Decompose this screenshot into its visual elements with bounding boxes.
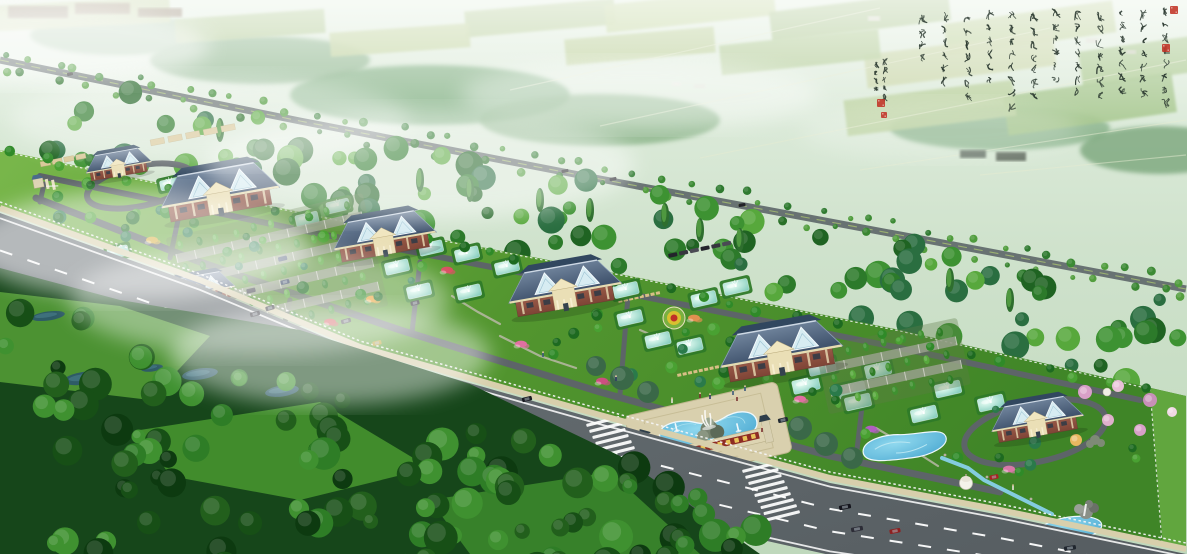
- tree-highlight: [602, 522, 621, 541]
- person: [671, 399, 673, 403]
- tree-highlight: [365, 515, 373, 523]
- tree-highlight: [132, 348, 145, 361]
- tree-highlight: [702, 521, 720, 539]
- tree-highlight: [572, 227, 584, 239]
- tree-highlight: [9, 301, 25, 317]
- tree-highlight: [667, 362, 674, 369]
- tree-highlight: [657, 493, 669, 505]
- tree-highlight: [46, 373, 60, 387]
- tree-highlight: [666, 240, 678, 252]
- person: [699, 394, 701, 398]
- tree-highlight: [133, 431, 141, 439]
- tree-highlight: [809, 388, 814, 393]
- flower-bed: [695, 318, 703, 323]
- tree-highlight: [1129, 445, 1134, 450]
- tree-highlight: [213, 406, 225, 418]
- parterre-center: [671, 315, 678, 322]
- tree-highlight: [419, 461, 433, 475]
- person: [615, 377, 617, 381]
- gate-booth: [33, 178, 45, 189]
- tree-highlight: [185, 437, 200, 452]
- flower-bed: [522, 344, 530, 349]
- tree-highlight: [350, 494, 366, 510]
- tree-highlight: [203, 498, 219, 514]
- tree-highlight: [895, 241, 905, 251]
- tree-highlight: [510, 255, 516, 261]
- tree-highlight: [595, 324, 600, 329]
- poplar-highlight: [662, 204, 667, 222]
- tree-highlight: [814, 230, 823, 239]
- tree-highlight: [893, 236, 897, 240]
- tree-highlight: [319, 231, 326, 238]
- tree-highlight: [833, 224, 836, 227]
- tree-highlight: [1155, 295, 1162, 302]
- tree-highlight: [849, 216, 852, 219]
- tree-highlight: [743, 517, 760, 534]
- tree-highlight: [1122, 264, 1126, 268]
- tree-highlight: [643, 187, 646, 190]
- tree-highlight: [968, 272, 978, 282]
- tree-highlight: [728, 528, 739, 539]
- tree-highlight: [689, 181, 693, 185]
- tree-highlight: [412, 523, 426, 537]
- tree-highlight: [1098, 328, 1112, 342]
- tree-highlight: [513, 430, 527, 444]
- tree-highlight: [892, 280, 904, 292]
- tree-highlight: [452, 231, 460, 239]
- tree-highlight: [469, 448, 479, 458]
- seal-mark: [878, 100, 879, 101]
- tree-highlight: [1163, 285, 1167, 289]
- tree-highlight: [549, 350, 555, 356]
- blossom-highlight: [1168, 408, 1173, 413]
- tree-highlight: [785, 203, 789, 207]
- tree-highlight: [427, 523, 446, 542]
- flower-highlight: [1002, 470, 1009, 474]
- aerial-rendering: [0, 0, 1187, 554]
- tree-highlight: [1067, 259, 1072, 264]
- tree-highlight: [399, 464, 413, 478]
- tree-highlight: [832, 283, 841, 292]
- tree-highlight: [1004, 333, 1019, 348]
- tree-highlight: [1016, 468, 1021, 473]
- stream-stone: [1030, 498, 1033, 501]
- tree-highlight: [498, 482, 512, 496]
- tree-highlight: [569, 329, 575, 335]
- tree-highlight: [755, 200, 758, 203]
- mist-cloud: [800, 100, 1080, 160]
- tree-highlight: [240, 513, 253, 526]
- tree-highlight: [1133, 455, 1138, 460]
- tree-highlight: [565, 470, 582, 487]
- flower-bed: [872, 429, 880, 434]
- tree-highlight: [731, 217, 739, 225]
- waterfall-rocks: [1074, 504, 1084, 514]
- tree-highlight: [1025, 246, 1029, 250]
- blossom-highlight: [1080, 387, 1087, 394]
- tree-highlight: [779, 277, 789, 287]
- person: [761, 428, 763, 432]
- small-pavilion: [1103, 388, 1111, 396]
- tree-highlight: [1016, 313, 1024, 321]
- blossom-highlight: [1114, 382, 1120, 388]
- tree-highlight: [1068, 373, 1074, 379]
- tree-highlight: [1177, 293, 1182, 298]
- tree-highlight: [687, 240, 694, 247]
- tree-highlight: [1107, 379, 1112, 384]
- poplar-highlight: [737, 229, 742, 247]
- tree-highlight: [291, 501, 302, 512]
- tree-highlight: [717, 185, 722, 190]
- poplar-highlight: [947, 269, 952, 287]
- flower-highlight: [793, 400, 800, 404]
- tree-highlight: [1004, 246, 1007, 249]
- tree-highlight: [831, 385, 838, 392]
- tree-highlight: [1095, 360, 1103, 368]
- seal-stamp: [881, 112, 887, 118]
- poplar-highlight: [587, 199, 592, 217]
- seal-mark: [1163, 45, 1164, 46]
- tree-highlight: [927, 343, 932, 348]
- gazebo-finial: [965, 474, 967, 476]
- person-head: [709, 393, 711, 395]
- tree-highlight: [1171, 331, 1180, 340]
- tree-highlight: [687, 199, 690, 202]
- tree-highlight: [49, 536, 58, 545]
- tree-highlight: [744, 187, 749, 192]
- tree-highlight: [926, 259, 933, 266]
- tree-highlight: [114, 452, 129, 467]
- tree-highlight: [652, 186, 663, 197]
- tree-highlight: [1047, 365, 1051, 369]
- flower-highlight: [687, 319, 694, 323]
- tree-highlight: [993, 406, 997, 410]
- tree-highlight: [6, 147, 12, 153]
- tree-highlight: [667, 284, 672, 289]
- person: [732, 391, 734, 395]
- tree-highlight: [1136, 322, 1149, 335]
- tree-highlight: [847, 269, 860, 282]
- mist-cloud: [70, 245, 450, 355]
- tree-highlight: [926, 230, 929, 233]
- tree-highlight: [736, 259, 743, 266]
- tree-highlight: [866, 215, 870, 219]
- seal-mark: [1171, 7, 1172, 8]
- person-head: [732, 389, 734, 391]
- seal-mark: [883, 105, 884, 106]
- tree-highlight: [593, 311, 599, 317]
- tree-highlight: [455, 490, 472, 507]
- tree-highlight: [896, 338, 900, 342]
- tree-highlight: [298, 512, 312, 526]
- tree-highlight: [1133, 308, 1147, 322]
- stream-stone: [944, 454, 947, 457]
- tree-highlight: [624, 480, 632, 488]
- tree-highlight: [843, 449, 855, 461]
- tree-highlight: [726, 301, 730, 305]
- person-head: [761, 426, 763, 428]
- mist-cloud: [460, 60, 820, 130]
- tree-highlight: [516, 525, 524, 533]
- tree-highlight: [418, 262, 424, 268]
- tree-highlight: [1026, 460, 1032, 466]
- person-head: [699, 392, 701, 394]
- tree-highlight: [122, 483, 131, 492]
- tree-highlight: [165, 185, 170, 190]
- tree-highlight: [968, 351, 973, 356]
- tree-highlight: [972, 257, 976, 261]
- tree-highlight: [899, 313, 914, 328]
- tree-highlight: [982, 267, 993, 278]
- tree-highlight: [639, 383, 651, 395]
- tree-highlight: [751, 307, 757, 313]
- tree-highlight: [708, 324, 715, 331]
- tree-highlight: [460, 242, 466, 248]
- tree-highlight: [490, 531, 501, 542]
- person-head: [744, 385, 746, 387]
- tree-highlight: [790, 418, 803, 431]
- tree-highlight: [1058, 328, 1071, 341]
- tree-highlight: [415, 444, 432, 461]
- tree-highlight: [723, 540, 735, 552]
- tree-highlight: [487, 248, 491, 252]
- person-head: [736, 395, 738, 397]
- person: [542, 353, 544, 357]
- tree-highlight: [1005, 263, 1008, 266]
- tree-highlight: [899, 250, 913, 264]
- person: [744, 387, 746, 391]
- tree-highlight: [278, 412, 289, 423]
- tree-highlight: [677, 537, 687, 547]
- rock-garden: [1097, 439, 1105, 447]
- seal-mark: [1176, 12, 1177, 13]
- tree-highlight: [35, 396, 48, 409]
- tree-highlight: [722, 250, 734, 262]
- calligraphy-glyph: [1120, 47, 1121, 54]
- blossom-highlight: [1136, 426, 1142, 432]
- tree-highlight: [160, 471, 176, 487]
- blossom-highlight: [1145, 395, 1152, 402]
- tree-highlight: [696, 377, 702, 383]
- tree-highlight: [834, 319, 840, 325]
- tree-highlight: [766, 284, 776, 294]
- tree-highlight: [1066, 360, 1074, 368]
- tree-highlight: [594, 467, 609, 482]
- person-head: [671, 397, 673, 399]
- tree-highlight: [418, 500, 428, 510]
- tree-highlight: [621, 454, 639, 472]
- tree-highlight: [1028, 330, 1038, 340]
- tree-highlight: [995, 357, 1001, 363]
- tree-highlight: [816, 434, 829, 447]
- tree-highlight: [878, 330, 883, 335]
- tree-highlight: [947, 236, 951, 240]
- flower-highlight: [440, 271, 447, 275]
- stream-stone: [986, 476, 989, 479]
- blossom-highlight: [1072, 436, 1078, 442]
- tree-highlight: [1071, 275, 1074, 278]
- person: [1012, 486, 1014, 490]
- poplar-highlight: [1007, 289, 1012, 307]
- tree-highlight: [468, 425, 480, 437]
- tree-highlight: [1102, 263, 1106, 267]
- tree-highlight: [612, 368, 625, 381]
- seal-mark: [882, 113, 883, 114]
- person-head: [615, 375, 617, 377]
- rendering-canvas: Aerial perspective rendering: a long lan…: [0, 0, 1187, 554]
- tree-highlight: [1142, 384, 1147, 389]
- tree-highlight: [553, 338, 558, 343]
- tree-highlight: [44, 153, 50, 159]
- tree-highlight: [726, 337, 732, 343]
- tree-highlight: [104, 416, 122, 434]
- tree-highlight: [1033, 287, 1041, 295]
- tree-highlight: [944, 248, 955, 259]
- person-head: [1012, 484, 1014, 486]
- tree-highlight: [995, 454, 1000, 459]
- tree-highlight: [682, 329, 687, 334]
- tree-highlight: [82, 370, 100, 388]
- person-head: [542, 351, 544, 353]
- tree-highlight: [139, 512, 152, 525]
- seal-mark: [885, 116, 886, 117]
- tree-highlight: [970, 235, 974, 239]
- tree-highlight: [612, 259, 621, 268]
- tree-highlight: [301, 452, 312, 463]
- tree-highlight: [697, 198, 711, 212]
- tree-highlight: [306, 214, 311, 219]
- tree-highlight: [1148, 267, 1153, 272]
- tree-highlight: [868, 263, 883, 278]
- tree-highlight: [334, 470, 345, 481]
- person: [709, 395, 711, 399]
- tree-highlight: [540, 209, 555, 224]
- tree-highlight: [161, 452, 171, 462]
- tree-highlight: [143, 383, 157, 397]
- seal-mark: [1168, 50, 1169, 51]
- tree-highlight: [55, 401, 67, 413]
- flower-bed: [448, 270, 456, 275]
- tree-highlight: [779, 217, 784, 222]
- tree-highlight: [1090, 275, 1094, 279]
- person: [736, 397, 738, 401]
- tree-highlight: [861, 429, 867, 435]
- tree-highlight: [553, 520, 563, 530]
- blossom-highlight: [1104, 416, 1110, 422]
- tree-highlight: [679, 345, 685, 351]
- tree-highlight: [700, 293, 706, 299]
- calligraphy-glyph: [943, 77, 944, 82]
- tree-highlight: [822, 208, 825, 211]
- tree-highlight: [594, 227, 608, 241]
- tree-highlight: [1175, 280, 1179, 284]
- rock-garden: [1086, 440, 1094, 448]
- tree-highlight: [550, 236, 558, 244]
- tree-highlight: [588, 358, 599, 369]
- tree-highlight: [953, 453, 959, 459]
- gazebo-dome: [961, 476, 971, 482]
- mist-cloud: [10, 75, 410, 165]
- tree-highlight: [541, 446, 554, 459]
- tree-highlight: [891, 218, 894, 221]
- flower-bed: [603, 381, 611, 386]
- tree-highlight: [672, 496, 682, 506]
- tree-highlight: [55, 438, 71, 454]
- tree-highlight: [851, 307, 865, 321]
- tree-highlight: [182, 383, 196, 397]
- tree-highlight: [863, 228, 868, 233]
- poplar-highlight: [697, 219, 702, 237]
- tree-highlight: [55, 162, 60, 167]
- tree-highlight: [804, 225, 808, 229]
- flower-highlight: [595, 382, 602, 386]
- tree-highlight: [52, 361, 60, 369]
- tree-highlight: [659, 176, 663, 180]
- tree-highlight: [690, 490, 701, 501]
- tree-highlight: [713, 378, 720, 385]
- tree-highlight: [695, 504, 707, 516]
- flower-highlight: [514, 345, 521, 349]
- flower-bed: [801, 399, 809, 404]
- tree-highlight: [1132, 283, 1137, 288]
- tree-highlight: [460, 459, 476, 475]
- tree-highlight: [832, 397, 837, 402]
- tree-highlight: [656, 473, 674, 491]
- tree-highlight: [1043, 251, 1048, 256]
